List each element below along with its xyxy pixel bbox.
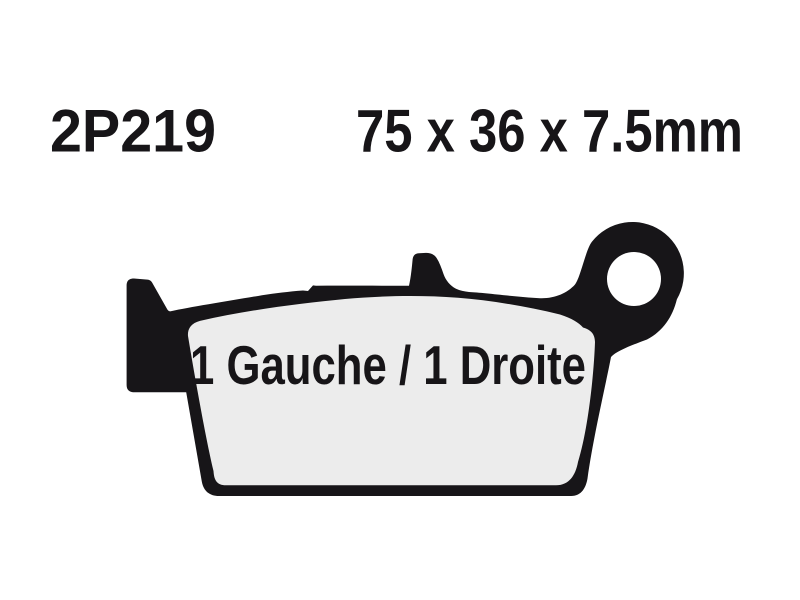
svg-text:2P219: 2P219 [50, 98, 216, 165]
svg-text:75 x 36 x 7.5mm: 75 x 36 x 7.5mm [356, 98, 743, 165]
svg-text:1 Gauche / 1 Droite: 1 Gauche / 1 Droite [190, 334, 586, 396]
